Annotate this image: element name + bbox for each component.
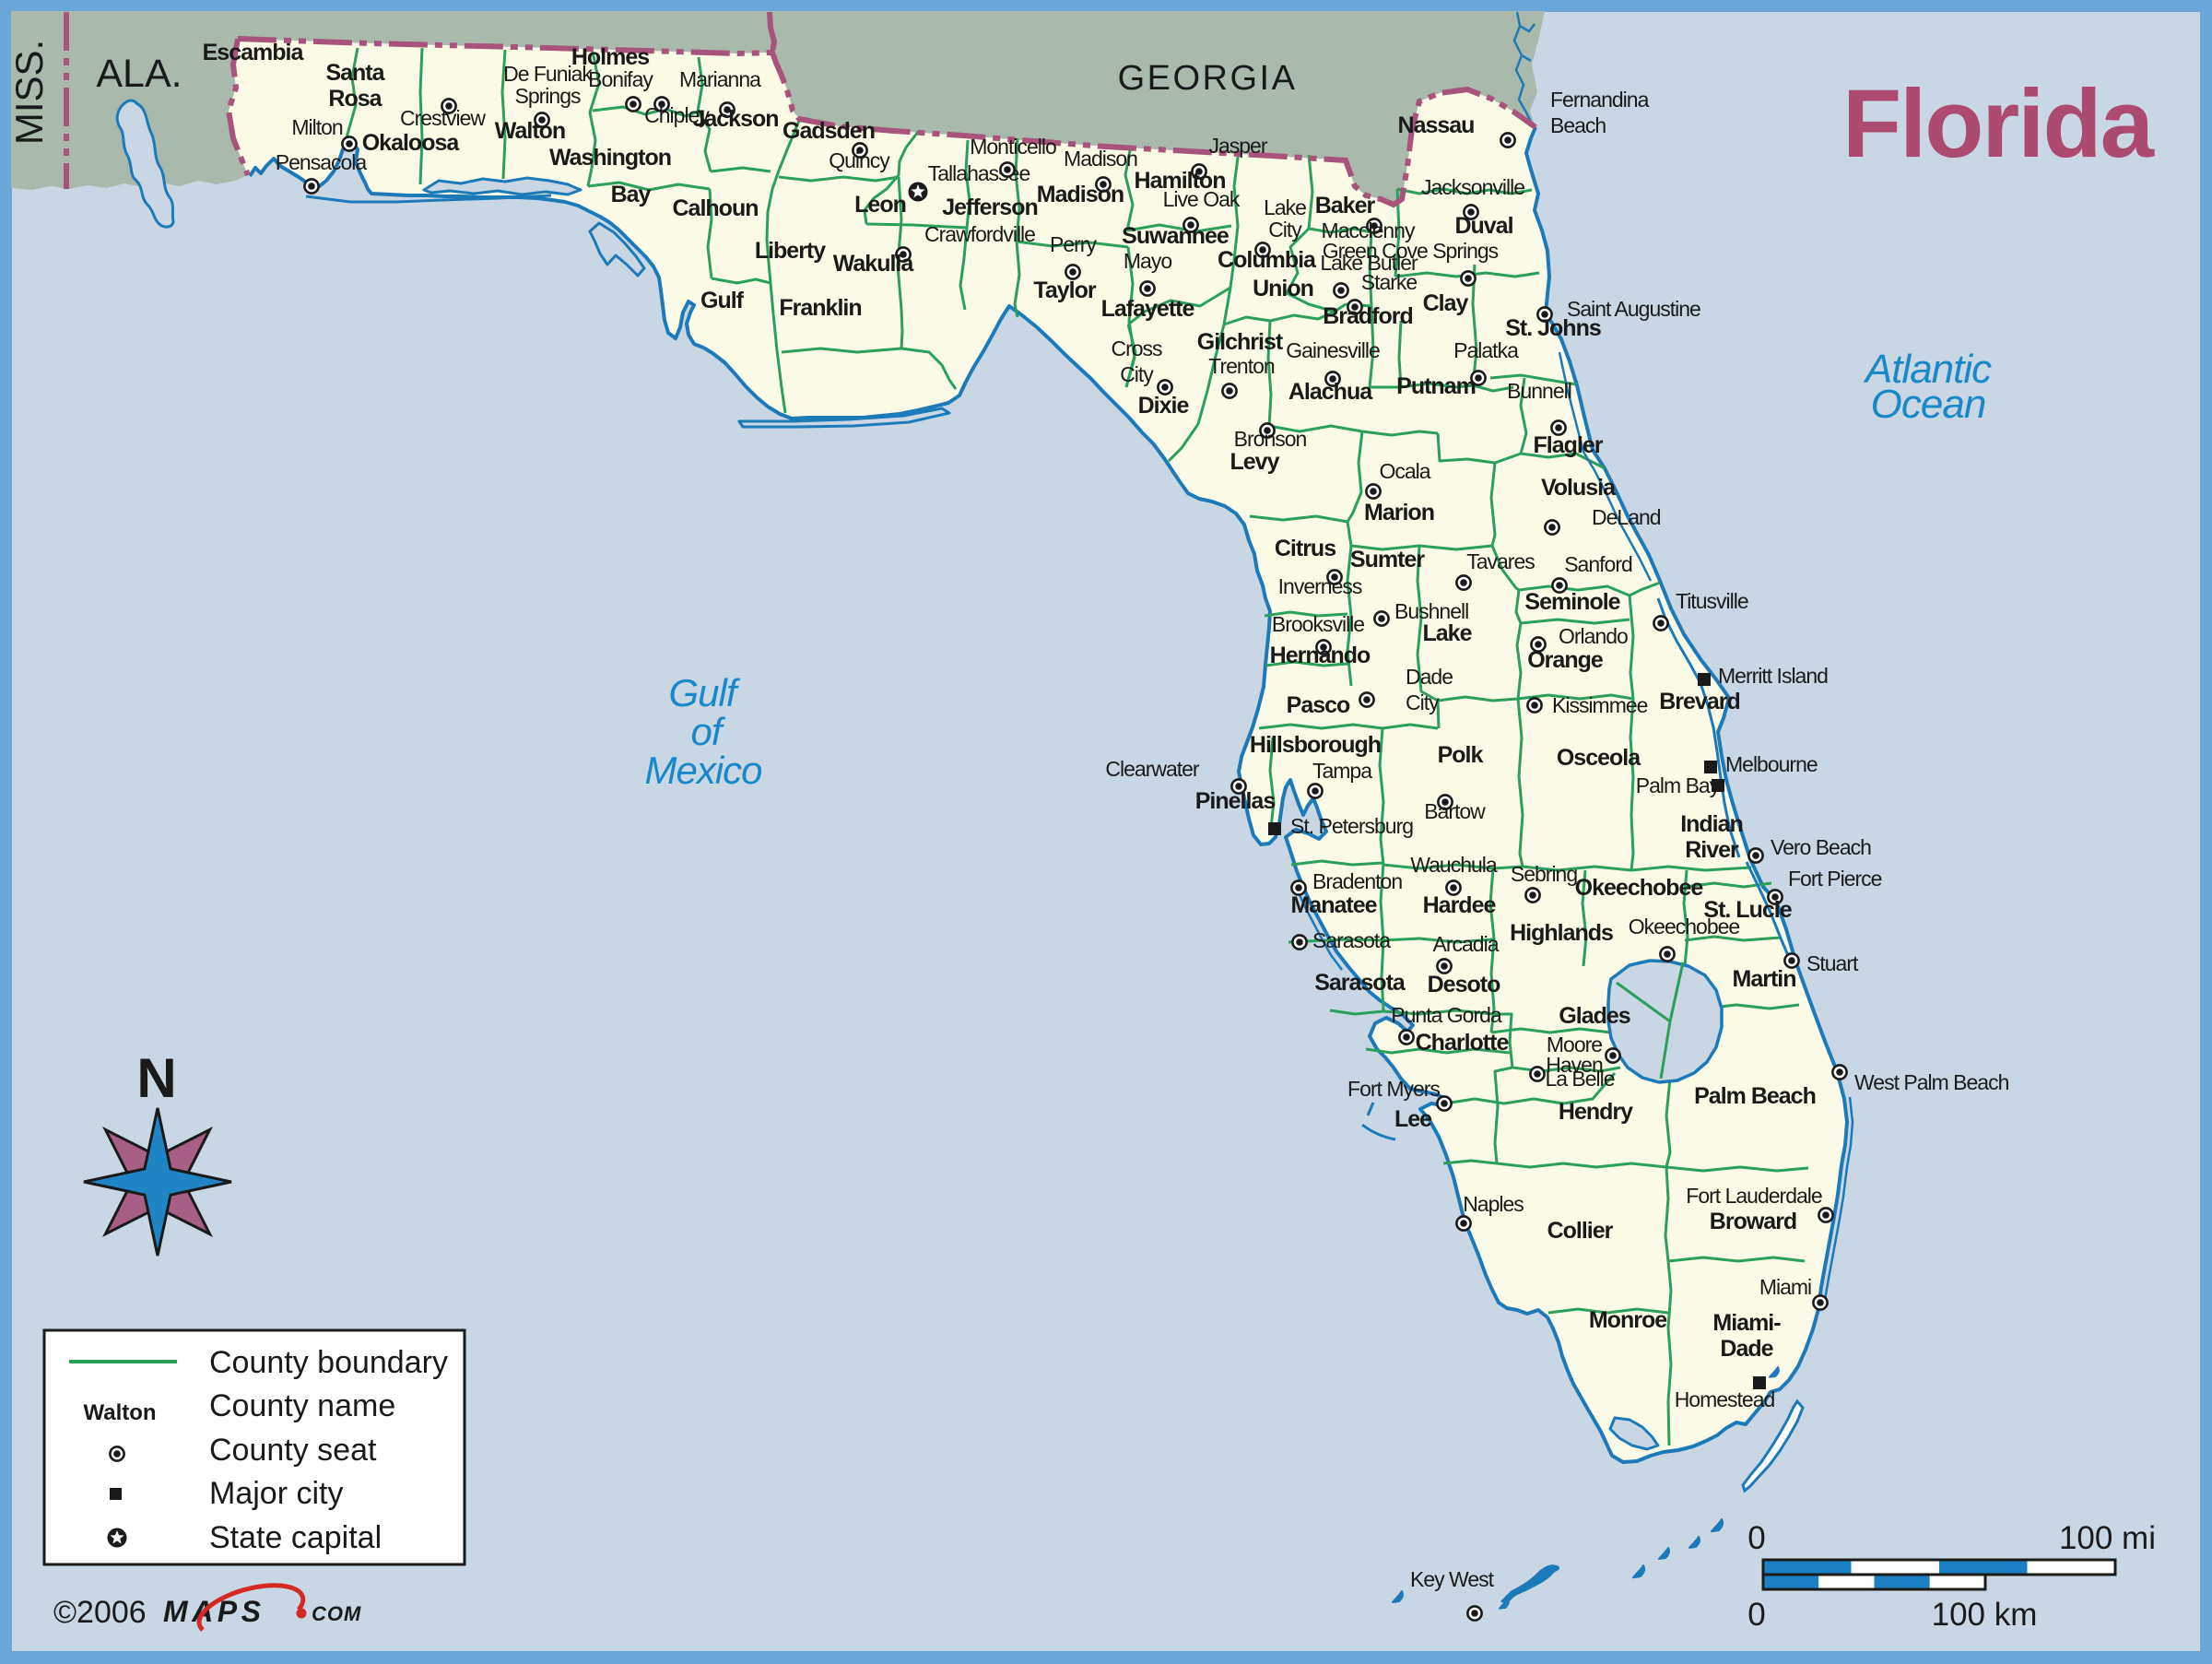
svg-text:Monroe: Monroe (1589, 1307, 1667, 1333)
svg-text:Okaloosa: Okaloosa (362, 130, 461, 156)
svg-text:Monticello: Monticello (970, 135, 1056, 159)
svg-text:Titusville: Titusville (1676, 589, 1748, 613)
svg-text:Homestead: Homestead (1675, 1387, 1775, 1411)
svg-text:St. Lucie: St. Lucie (1703, 897, 1792, 923)
svg-text:City: City (1268, 218, 1302, 242)
svg-text:Columbia: Columbia (1218, 247, 1317, 273)
svg-text:©2006: ©2006 (53, 1595, 147, 1630)
svg-text:Orange: Orange (1527, 647, 1604, 673)
svg-text:La Belle: La Belle (1545, 1067, 1614, 1091)
svg-text:Crestview: Crestview (400, 106, 486, 130)
svg-text:Ocean: Ocean (1871, 382, 1986, 427)
svg-text:Leon: Leon (854, 192, 906, 218)
svg-text:Citrus: Citrus (1275, 536, 1335, 561)
svg-text:Hernando: Hernando (1270, 643, 1371, 668)
svg-text:Seminole: Seminole (1524, 589, 1620, 615)
svg-text:of: of (690, 710, 725, 753)
svg-text:Miami: Miami (1759, 1275, 1811, 1299)
svg-text:West Palm Beach: West Palm Beach (1854, 1070, 2009, 1094)
svg-text:Dade: Dade (1720, 1336, 1773, 1362)
svg-text:Sarasota: Sarasota (1314, 970, 1406, 996)
svg-text:Osceola: Osceola (1557, 745, 1641, 771)
svg-text:Fort Pierce: Fort Pierce (1788, 867, 1882, 891)
svg-text:Holmes: Holmes (571, 44, 649, 70)
svg-text:Naples: Naples (1463, 1192, 1524, 1216)
svg-text:Brooksville: Brooksville (1272, 612, 1364, 636)
svg-text:Liberty: Liberty (755, 238, 826, 264)
svg-text:Okeechobee: Okeechobee (1575, 875, 1704, 901)
svg-text:Orlando: Orlando (1559, 624, 1628, 648)
svg-text:Pasco: Pasco (1287, 692, 1350, 718)
svg-text:0: 0 (1747, 1597, 1765, 1633)
svg-text:100 mi: 100 mi (2059, 1520, 2156, 1556)
svg-text:MISS.: MISS. (7, 40, 51, 145)
svg-text:Collier: Collier (1547, 1218, 1614, 1244)
svg-text:100 km: 100 km (1932, 1597, 2038, 1633)
svg-text:Cross: Cross (1111, 336, 1162, 360)
svg-text:Marianna: Marianna (679, 67, 761, 91)
svg-text:Union: Union (1253, 276, 1313, 301)
svg-text:Levy: Levy (1230, 449, 1280, 475)
svg-text:Beach: Beach (1550, 113, 1606, 137)
svg-text:Putnam: Putnam (1396, 373, 1476, 399)
svg-text:Palatka: Palatka (1453, 338, 1519, 362)
svg-text:Kissimmee: Kissimmee (1552, 693, 1648, 717)
svg-text:Walton: Walton (83, 1400, 156, 1425)
svg-text:Florida: Florida (1842, 70, 2156, 178)
svg-text:Sanford: Sanford (1564, 552, 1632, 576)
svg-text:Highlands: Highlands (1510, 920, 1613, 946)
svg-text:Nassau: Nassau (1398, 112, 1475, 138)
svg-text:Bradenton: Bradenton (1312, 869, 1402, 893)
svg-text:Madison: Madison (1037, 182, 1124, 207)
svg-text:MAPS: MAPS (163, 1595, 265, 1628)
svg-text:Baker: Baker (1315, 193, 1376, 218)
svg-text:Mayo: Mayo (1124, 249, 1171, 273)
svg-text:County seat: County seat (209, 1433, 377, 1468)
svg-text:Santa: Santa (325, 60, 385, 86)
svg-text:County boundary: County boundary (209, 1345, 448, 1380)
svg-text:Calhoun: Calhoun (673, 195, 759, 221)
svg-text:Duval: Duval (1454, 213, 1512, 239)
svg-text:Lafayette: Lafayette (1101, 296, 1195, 322)
svg-text:Pensacola: Pensacola (276, 150, 368, 174)
svg-text:Bunnell: Bunnell (1507, 379, 1571, 403)
svg-text:Lee: Lee (1394, 1106, 1432, 1132)
svg-text:Marion: Marion (1364, 500, 1434, 525)
svg-text:St. Petersburg: St. Petersburg (1290, 814, 1413, 838)
svg-text:Fernandina: Fernandina (1550, 88, 1650, 112)
svg-text:Martin: Martin (1733, 966, 1796, 992)
svg-text:Fort Myers: Fort Myers (1347, 1077, 1440, 1101)
svg-text:Washington: Washington (549, 145, 671, 171)
svg-text:Clearwater: Clearwater (1105, 757, 1200, 781)
svg-text:River: River (1685, 837, 1739, 863)
svg-text:Bronson: Bronson (1234, 427, 1307, 451)
svg-text:Wakulla: Wakulla (833, 251, 915, 277)
svg-text:Hillsborough: Hillsborough (1250, 732, 1381, 758)
svg-text:Jacksonville: Jacksonville (1421, 175, 1524, 199)
svg-text:Palm Beach: Palm Beach (1694, 1083, 1816, 1109)
svg-text:Madison: Madison (1064, 147, 1137, 171)
svg-text:Mexico: Mexico (644, 749, 762, 792)
svg-text:Glades: Glades (1559, 1003, 1630, 1029)
svg-text:Gulf: Gulf (668, 671, 740, 714)
svg-text:Manatee: Manatee (1290, 892, 1377, 918)
svg-text:Sumter: Sumter (1350, 547, 1425, 572)
svg-text:GEORGIA: GEORGIA (1118, 59, 1298, 98)
svg-text:0: 0 (1747, 1520, 1765, 1556)
svg-text:Alachua: Alachua (1288, 379, 1373, 405)
svg-text:Indian: Indian (1680, 811, 1743, 837)
svg-text:Tavares: Tavares (1466, 549, 1535, 573)
svg-text:ALA.: ALA. (96, 52, 182, 96)
svg-text:Inverness: Inverness (1278, 574, 1362, 598)
svg-text:Jasper: Jasper (1208, 134, 1267, 158)
svg-text:Walton: Walton (495, 118, 565, 144)
svg-text:Charlotte: Charlotte (1416, 1030, 1510, 1056)
svg-text:Key West: Key West (1410, 1567, 1495, 1591)
svg-text:Trenton: Trenton (1208, 354, 1275, 378)
svg-text:Miami-: Miami- (1712, 1310, 1781, 1336)
svg-text:Flagler: Flagler (1534, 432, 1604, 458)
svg-text:Gulf: Gulf (700, 288, 745, 313)
svg-text:Hendry: Hendry (1559, 1099, 1633, 1125)
svg-text:Brevard: Brevard (1659, 689, 1740, 714)
svg-text:Punta Gorda: Punta Gorda (1391, 1003, 1502, 1027)
svg-text:Dixie: Dixie (1138, 393, 1190, 419)
svg-text:Desoto: Desoto (1428, 972, 1500, 997)
svg-text:Polk: Polk (1438, 742, 1484, 768)
svg-text:Dade: Dade (1406, 665, 1453, 689)
svg-text:Franklin: Franklin (779, 295, 861, 321)
svg-text:Bradford: Bradford (1323, 303, 1413, 329)
svg-text:City: City (1120, 362, 1154, 386)
svg-text:N: N (136, 1047, 176, 1109)
svg-text:Lake: Lake (1264, 195, 1306, 219)
svg-text:City: City (1406, 690, 1440, 714)
svg-text:Springs: Springs (515, 84, 581, 108)
svg-text:Jefferson: Jefferson (942, 195, 1038, 220)
svg-text:Palm Bay: Palm Bay (1636, 773, 1721, 797)
svg-text:Taylor: Taylor (1033, 277, 1096, 303)
svg-text:Pinellas: Pinellas (1195, 788, 1276, 814)
svg-text:COM: COM (312, 1602, 361, 1625)
svg-text:Fort Lauderdale: Fort Lauderdale (1686, 1184, 1822, 1208)
svg-text:Bartow: Bartow (1424, 799, 1486, 823)
svg-text:Sarasota: Sarasota (1312, 928, 1391, 952)
svg-text:Bay: Bay (611, 182, 652, 207)
svg-text:Major city: Major city (209, 1476, 343, 1511)
svg-text:Arcadia: Arcadia (1433, 932, 1500, 956)
svg-text:Hamilton: Hamilton (1135, 168, 1226, 194)
svg-text:DeLand: DeLand (1592, 505, 1661, 529)
svg-text:County name: County name (209, 1388, 395, 1423)
svg-text:Clay: Clay (1423, 290, 1469, 316)
svg-text:Lake: Lake (1423, 620, 1473, 646)
svg-text:State capital: State capital (209, 1520, 382, 1555)
svg-text:Suwannee: Suwannee (1122, 223, 1230, 249)
svg-text:Volusia: Volusia (1541, 475, 1617, 501)
svg-text:Merritt Island: Merritt Island (1718, 664, 1828, 688)
svg-text:Bonifay: Bonifay (588, 67, 653, 91)
svg-text:Ocala: Ocala (1379, 459, 1430, 483)
svg-text:Escambia: Escambia (203, 40, 305, 65)
svg-text:Sebring: Sebring (1511, 862, 1577, 886)
svg-text:Melbourne: Melbourne (1725, 752, 1818, 776)
svg-text:Rosa: Rosa (328, 86, 382, 112)
svg-text:Gadsden: Gadsden (782, 118, 875, 144)
svg-text:Gainesville: Gainesville (1286, 338, 1380, 362)
svg-text:Broward: Broward (1710, 1209, 1796, 1234)
svg-text:Quincy: Quincy (829, 148, 890, 172)
svg-text:Starke: Starke (1361, 270, 1418, 294)
svg-text:Crawfordville: Crawfordville (924, 222, 1035, 246)
svg-text:Jackson: Jackson (692, 106, 778, 132)
svg-text:Stuart: Stuart (1806, 951, 1859, 975)
svg-text:Gilchrist: Gilchrist (1197, 329, 1284, 355)
svg-text:Milton: Milton (291, 115, 343, 139)
svg-text:Perry: Perry (1050, 232, 1097, 256)
svg-text:Hardee: Hardee (1423, 892, 1497, 918)
svg-text:St. Johns: St. Johns (1505, 315, 1601, 341)
svg-text:Vero Beach: Vero Beach (1771, 835, 1871, 859)
svg-text:Tampa: Tampa (1312, 759, 1372, 783)
svg-text:Wauchula: Wauchula (1410, 853, 1498, 877)
